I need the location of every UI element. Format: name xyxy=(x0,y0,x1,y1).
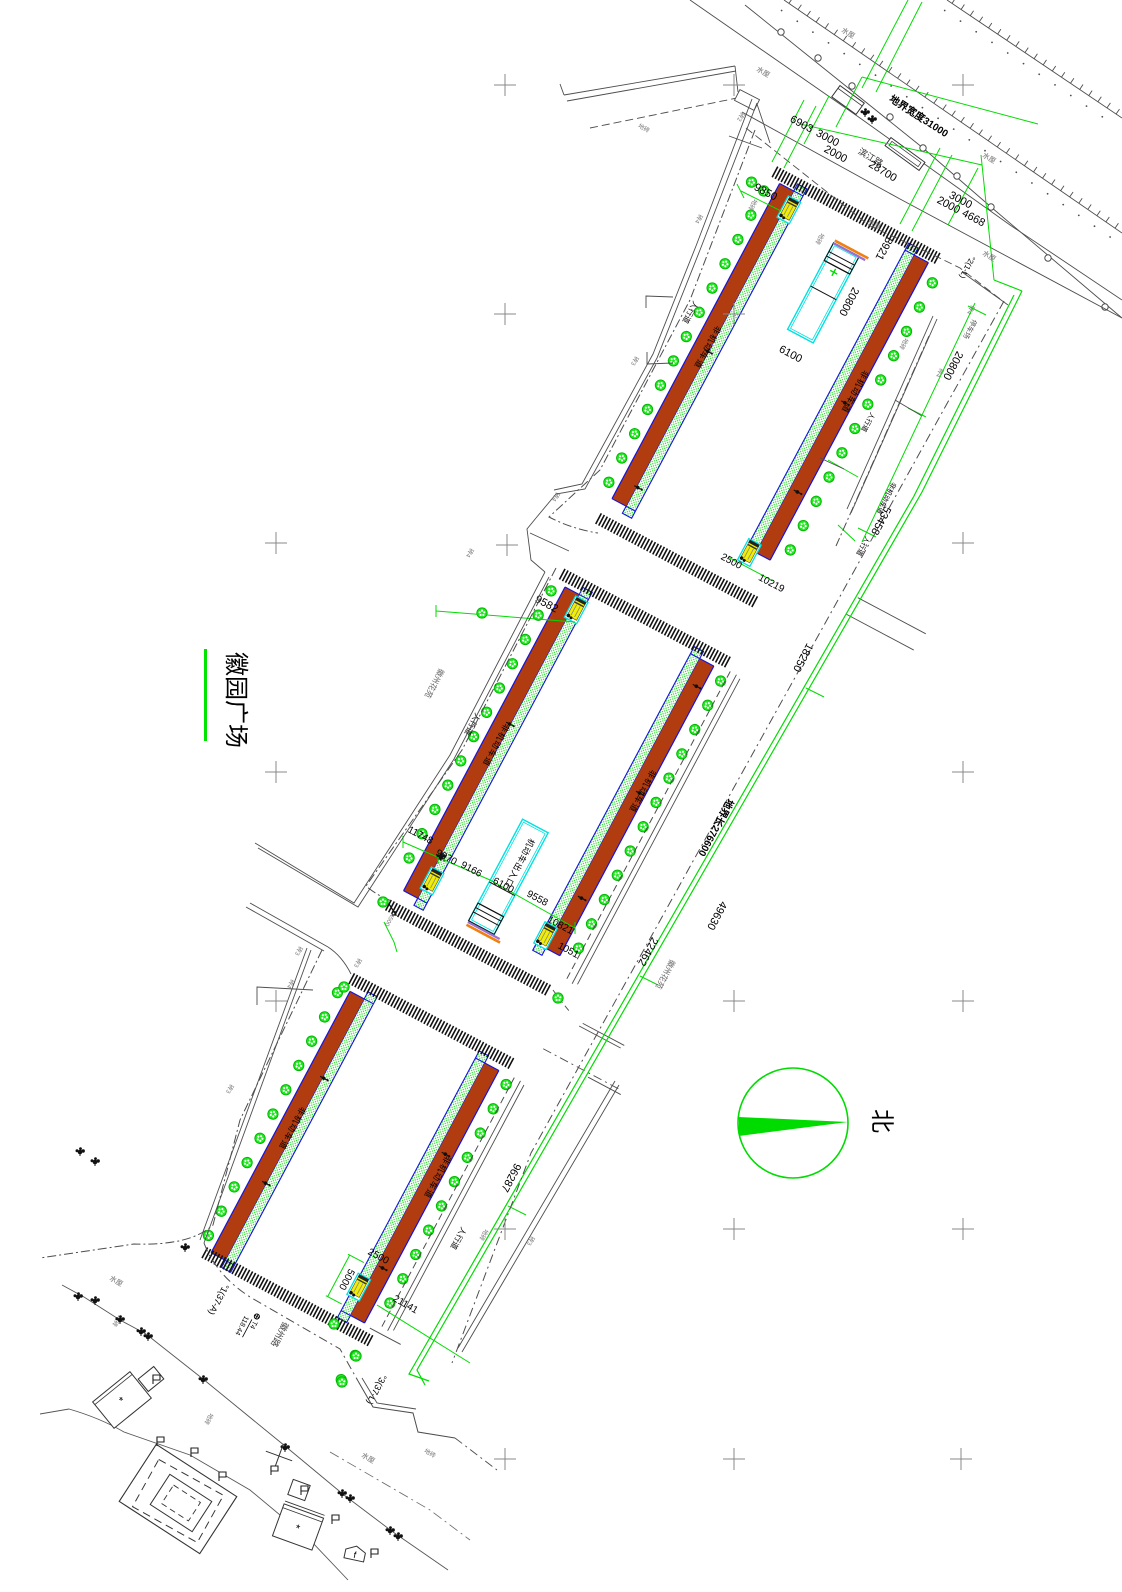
svg-text:徽园广场: 徽园广场 xyxy=(222,652,249,748)
svg-text:北: 北 xyxy=(868,1109,895,1133)
